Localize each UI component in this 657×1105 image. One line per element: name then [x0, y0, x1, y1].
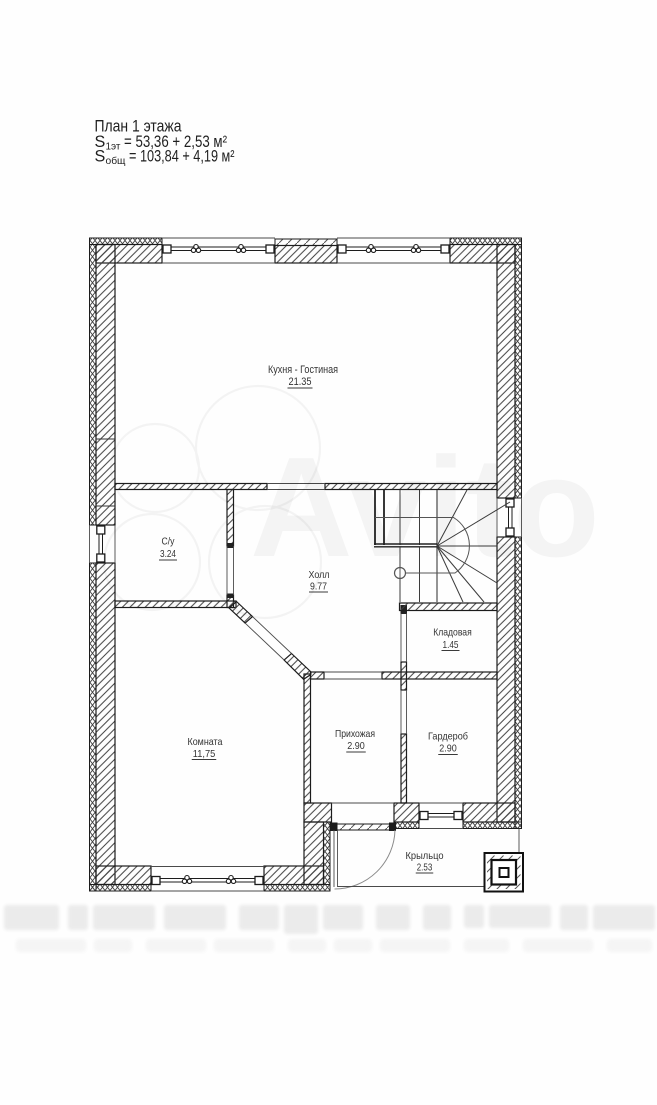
svg-text:2.90: 2.90 — [347, 740, 365, 752]
svg-text:С/у: С/у — [162, 536, 176, 548]
svg-text:общ: общ — [106, 155, 126, 167]
svg-text:3.24: 3.24 — [160, 548, 176, 560]
svg-text:Крыльцо: Крыльцо — [406, 850, 444, 862]
svg-text:Прихожая: Прихожая — [335, 728, 375, 740]
svg-text:Комната: Комната — [188, 736, 223, 748]
svg-text:1эт: 1эт — [106, 142, 121, 153]
svg-text:21.35: 21.35 — [289, 376, 312, 388]
svg-text:2.90: 2.90 — [439, 743, 457, 755]
svg-text:Кухня - Гостиная: Кухня - Гостиная — [268, 364, 338, 376]
svg-text:S: S — [95, 148, 106, 166]
svg-text:Avito: Avito — [250, 428, 600, 587]
svg-text:= 103,84 + 4,19 м²: = 103,84 + 4,19 м² — [129, 148, 235, 166]
svg-text:11,75: 11,75 — [193, 748, 216, 760]
svg-text:2.53: 2.53 — [417, 862, 433, 874]
svg-text:1.45: 1.45 — [443, 639, 459, 651]
svg-text:Кладовая: Кладовая — [433, 627, 472, 639]
svg-text:Гардероб: Гардероб — [428, 731, 468, 743]
